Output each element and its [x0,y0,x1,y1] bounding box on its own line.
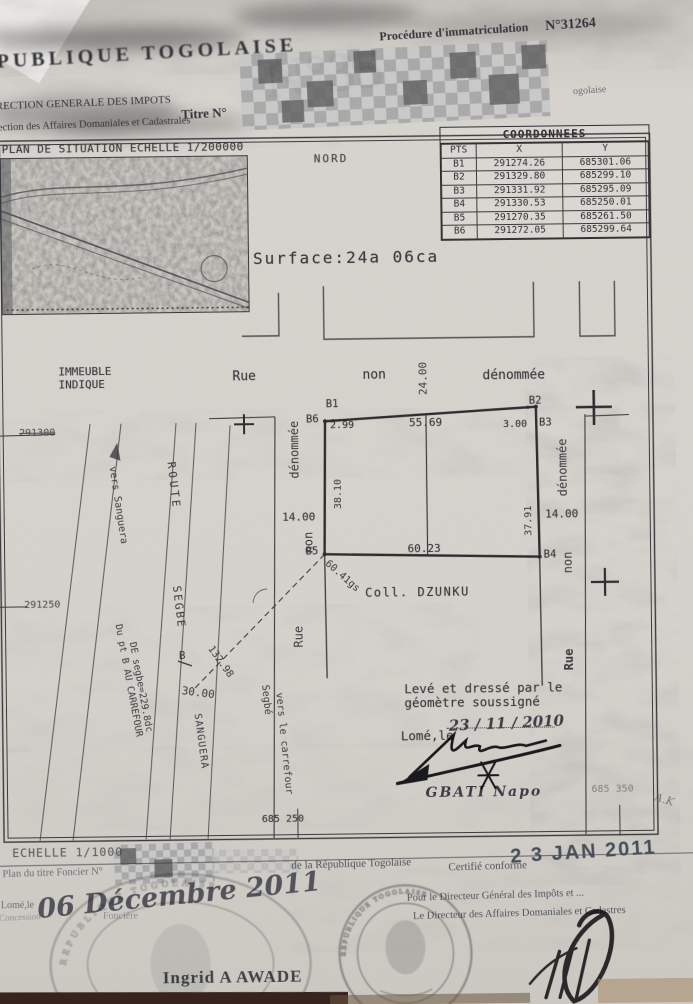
scanned-cadastral-plan: PUBLIQUE TOGOLAISE Procédure d'immatricu… [0,0,693,1004]
photo-edge-bottom-fade [330,993,530,1004]
paper-sheet: PUBLIQUE TOGOLAISE Procédure d'immatricu… [0,0,693,1004]
ink-overlay: REPUBLIQUE TOGOLAISE REPUBLIQUE TOGOLAIS… [0,0,693,1004]
photo-edge-bottom [0,992,348,1004]
photo-edge-corner [598,978,693,1003]
